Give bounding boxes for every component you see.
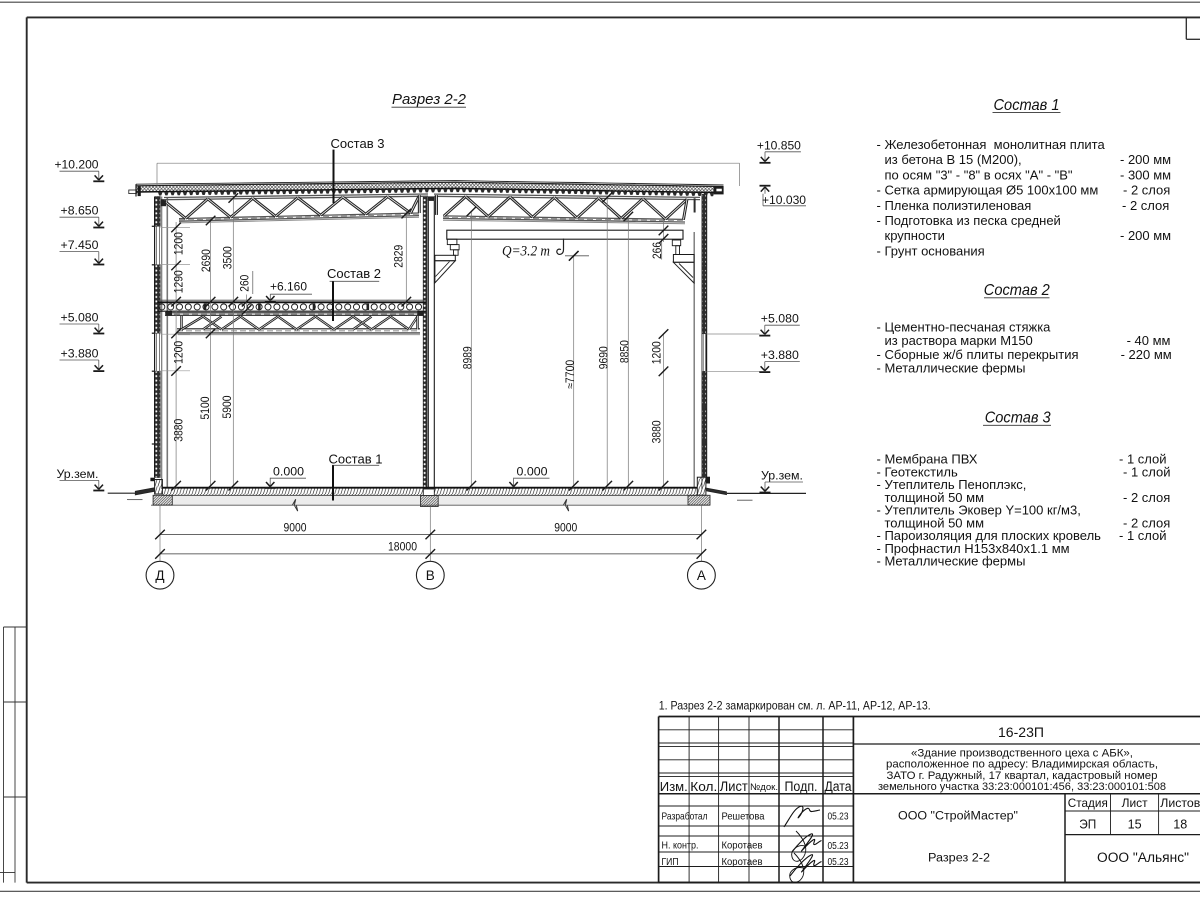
svg-text:Состав 1: Состав 1 bbox=[329, 453, 383, 467]
svg-text:3880: 3880 bbox=[174, 419, 186, 442]
svg-text:05.23: 05.23 bbox=[828, 840, 849, 852]
svg-text:В: В bbox=[426, 568, 435, 583]
svg-text:Разработал: Разработал bbox=[662, 810, 708, 822]
svg-text:05.23: 05.23 bbox=[828, 810, 849, 822]
svg-text:ГИП: ГИП bbox=[662, 856, 679, 868]
svg-text:Листов: Листов bbox=[1160, 796, 1200, 810]
svg-text:- 1 слой: - 1 слой bbox=[1123, 464, 1171, 479]
svg-text:расположенное по адресу: Влади: расположенное по адресу: Владимирская об… bbox=[886, 759, 1158, 771]
svg-text:+3.880: +3.880 bbox=[761, 350, 799, 362]
svg-text:из бетона В 15 (М200),: из бетона В 15 (М200), bbox=[885, 152, 1022, 167]
svg-text:ЗАТО г. Радужный, 17 квартал,: ЗАТО г. Радужный, 17 квартал, кадастровы… bbox=[887, 770, 1158, 782]
svg-text:0.000: 0.000 bbox=[517, 464, 548, 478]
svg-text:+10.200: +10.200 bbox=[55, 160, 99, 172]
svg-text:260: 260 bbox=[240, 275, 252, 292]
svg-text:крупности: крупности bbox=[885, 228, 945, 243]
svg-text:+3.880: +3.880 bbox=[61, 348, 99, 360]
svg-text:8989: 8989 bbox=[463, 346, 475, 369]
svg-text:+8.650: +8.650 bbox=[61, 206, 99, 218]
svg-text:- Подготовка из песка средней: - Подготовка из песка средней bbox=[877, 213, 1061, 228]
svg-text:1200: 1200 bbox=[652, 341, 664, 364]
svg-text:ООО "Альянс": ООО "Альянс" bbox=[1097, 850, 1189, 865]
svg-text:5900: 5900 bbox=[222, 396, 234, 419]
svg-text:2829: 2829 bbox=[394, 245, 406, 268]
svg-text:- Пленка полиэтиленовая: - Пленка полиэтиленовая bbox=[877, 198, 1032, 213]
svg-text:9690: 9690 bbox=[599, 346, 611, 369]
svg-text:№док.: №док. bbox=[750, 782, 778, 793]
svg-text:- Металлические фермы: - Металлические фермы bbox=[877, 361, 1026, 376]
svg-text:Состав 3: Состав 3 bbox=[331, 137, 385, 151]
svg-text:- 300 мм: - 300 мм bbox=[1120, 167, 1171, 182]
svg-text:+6.160: +6.160 bbox=[270, 280, 307, 294]
svg-text:18: 18 bbox=[1173, 817, 1187, 831]
svg-text:- 220 мм: - 220 мм bbox=[1121, 347, 1172, 362]
svg-text:0.000: 0.000 bbox=[273, 464, 304, 478]
svg-text:1200: 1200 bbox=[174, 341, 186, 364]
svg-text:ЭП: ЭП bbox=[1079, 817, 1096, 831]
svg-text:05.23: 05.23 bbox=[828, 856, 849, 868]
svg-text:+5.080: +5.080 bbox=[761, 313, 799, 325]
svg-text:- 2 слоя: - 2 слоя bbox=[1123, 183, 1170, 198]
svg-text:5100: 5100 bbox=[200, 397, 212, 420]
svg-text:+10.030: +10.030 bbox=[762, 195, 806, 207]
svg-text:- Металлические фермы: - Металлические фермы bbox=[877, 554, 1026, 569]
svg-text:- 2 слоя: - 2 слоя bbox=[1122, 198, 1169, 213]
svg-text:Подп.: Подп. bbox=[785, 779, 818, 794]
svg-text:Стадия: Стадия bbox=[1068, 796, 1108, 810]
svg-text:9000: 9000 bbox=[554, 520, 577, 534]
svg-text:Коротаев: Коротаев bbox=[722, 856, 763, 868]
svg-text:2690: 2690 bbox=[201, 249, 213, 272]
svg-text:- 200 мм: - 200 мм bbox=[1120, 228, 1171, 243]
svg-text:16-23П: 16-23П bbox=[998, 725, 1044, 740]
svg-text:Коротаев: Коротаев bbox=[722, 840, 763, 852]
svg-text:Ур.зем.: Ур.зем. bbox=[57, 469, 99, 481]
svg-text:1200: 1200 bbox=[174, 232, 186, 255]
svg-text:- 2 слоя: - 2 слоя bbox=[1123, 490, 1170, 505]
svg-text:земельного участка 33:23:00010: земельного участка 33:23:000101:456, 33:… bbox=[878, 781, 1166, 793]
svg-text:Д: Д bbox=[155, 568, 164, 583]
svg-text:Лист: Лист bbox=[1122, 796, 1148, 810]
svg-text:Н. контр.: Н. контр. bbox=[662, 840, 699, 852]
svg-text:Разрез 2-2: Разрез 2-2 bbox=[392, 91, 467, 108]
svg-text:Состав 3: Состав 3 bbox=[985, 410, 1051, 427]
svg-text:266: 266 bbox=[652, 242, 664, 259]
svg-text:Решетова: Решетова bbox=[722, 810, 765, 822]
svg-text:1. Разрез 2-2 замаркирован см.: 1. Разрез 2-2 замаркирован см. л. АР-11,… bbox=[659, 699, 931, 713]
svg-text:Кол.: Кол. bbox=[690, 779, 717, 794]
svg-text:- Сетка армирующая Ø5 100х100: - Сетка армирующая Ø5 100х100 мм bbox=[877, 183, 1099, 198]
svg-text:- 1 слой: - 1 слой bbox=[1119, 528, 1167, 543]
svg-text:«Здание производственного цеха: «Здание производственного цеха с АБК», bbox=[911, 747, 1133, 759]
svg-text:Разрез 2-2: Разрез 2-2 bbox=[928, 853, 990, 865]
svg-text:+7.450: +7.450 bbox=[61, 240, 99, 252]
svg-text:Состав 2: Состав 2 bbox=[327, 267, 381, 281]
svg-text:Изм.: Изм. bbox=[660, 779, 688, 794]
svg-text:Q=3.2 m: Q=3.2 m bbox=[502, 244, 550, 260]
svg-text:8850: 8850 bbox=[620, 340, 632, 363]
svg-text:15: 15 bbox=[1128, 817, 1142, 831]
svg-text:3880: 3880 bbox=[652, 420, 664, 443]
svg-text:18000: 18000 bbox=[388, 540, 417, 554]
svg-text:Состав 1: Состав 1 bbox=[994, 97, 1060, 114]
svg-text:Дата: Дата bbox=[825, 779, 852, 794]
svg-text:+10.850: +10.850 bbox=[757, 141, 801, 153]
svg-text:3500: 3500 bbox=[223, 246, 235, 269]
svg-text:+5.080: +5.080 bbox=[61, 312, 99, 324]
svg-text:Лист: Лист bbox=[720, 779, 748, 794]
svg-text:≈7700: ≈7700 bbox=[565, 360, 577, 389]
svg-text:- Грунт основания: - Грунт основания bbox=[877, 243, 985, 258]
svg-text:А: А bbox=[697, 568, 706, 583]
svg-text:9000: 9000 bbox=[284, 520, 307, 534]
svg-text:Ур.зем.: Ур.зем. bbox=[761, 471, 803, 483]
svg-text:- Железобетонная монолитная п: - Железобетонная монолитная плита bbox=[877, 137, 1106, 152]
svg-text:1290: 1290 bbox=[174, 270, 186, 293]
svg-text:- 200 мм: - 200 мм bbox=[1120, 152, 1171, 167]
svg-text:ООО "СтройМастер": ООО "СтройМастер" bbox=[898, 811, 1018, 823]
svg-text:по осям "3" - "8" в осях "А" -: по осям "3" - "8" в осях "А" - "В" bbox=[885, 167, 1073, 182]
svg-text:Состав 2: Состав 2 bbox=[984, 282, 1050, 299]
